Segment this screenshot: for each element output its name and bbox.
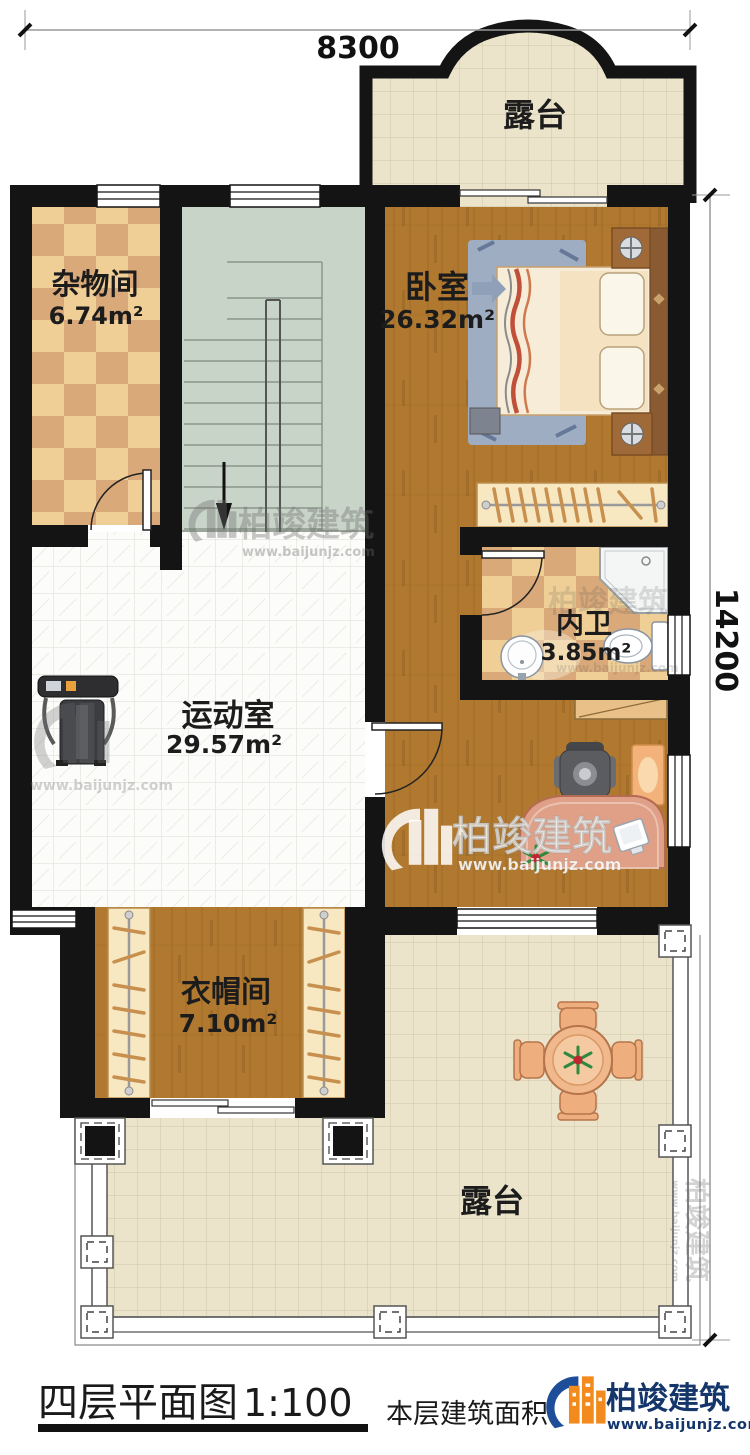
window-study-bottom [457,909,597,928]
storage-floor [32,207,160,525]
sideboard [575,697,667,719]
title-underline [38,1424,368,1432]
brand-website: www.baijunjz.com [607,1417,750,1433]
floorplan-page: 柏竣建筑 www.baijunjz.com www.baijunjz.com 柏… [0,0,750,1455]
terrace-bottom-floor-right [385,935,673,1317]
window-study-right [668,755,690,847]
bedroom-bench [470,408,500,434]
watermark-site: www.baijunjz.com [30,778,173,794]
watermark-text: 柏竣建筑 [681,1178,712,1282]
bedroom-wardrobe [477,483,668,527]
title-block: 四层平面图 1:100 本层建筑面积 [38,1380,548,1432]
label-bathroom-area: 3.85m² [541,640,632,666]
label-bedroom-area: 26.32m² [379,305,495,334]
window-storage-top [97,185,160,207]
label-terrace-top: 露台 [503,96,567,134]
stairwell-floor [182,207,365,532]
nightstand-bottom [612,413,652,455]
watermark-desk: 柏竣建筑 www.baijunjz.com [382,809,622,874]
slider-cloakroom-terrace [152,1100,294,1113]
label-storage: 杂物间 [51,267,138,301]
watermark-site: www.baijunjz.com [458,855,621,874]
label-bedroom: 卧室 [405,268,469,306]
plan-title: 四层平面图 [38,1380,238,1426]
watermark-terrace-right: 柏竣建筑 www.baijunjz.com [669,1178,712,1282]
watermark-text: 柏竣建筑 [238,505,374,545]
cloakroom-wardrobe-left [108,908,150,1098]
plan-scale: 1:100 [243,1381,353,1425]
label-cloakroom-area: 7.10m² [179,1009,278,1038]
label-bathroom: 内卫 [556,607,612,640]
label-terrace-bottom: 露台 [460,1182,524,1220]
label-gym: 运动室 [182,698,275,734]
floorplan-canvas: 柏竣建筑 www.baijunjz.com www.baijunjz.com 柏… [0,0,750,1455]
dim-width: 8300 [316,31,400,66]
window-stair-top [230,185,320,207]
brand-logo: 柏竣建筑 www.baijunjz.com [546,1376,750,1433]
cloakroom-wardrobe-right [303,908,345,1098]
nightstand-top [612,228,650,268]
watermark-site: www.baijunjz.com [242,545,375,560]
label-gym-area: 29.57m² [166,730,282,759]
brand-name: 柏竣建筑 [606,1381,730,1417]
watermark-site: www.baijunjz.com [669,1180,680,1282]
area-note: 本层建筑面积 [386,1399,548,1430]
brand-logo-icon [546,1376,605,1428]
dim-height: 14200 [708,588,743,692]
label-storage-area: 6.74m² [49,302,144,330]
watermark-text: 柏竣建筑 [452,814,612,860]
label-cloakroom: 衣帽间 [181,975,271,1010]
window-gym-bottom [12,910,76,928]
